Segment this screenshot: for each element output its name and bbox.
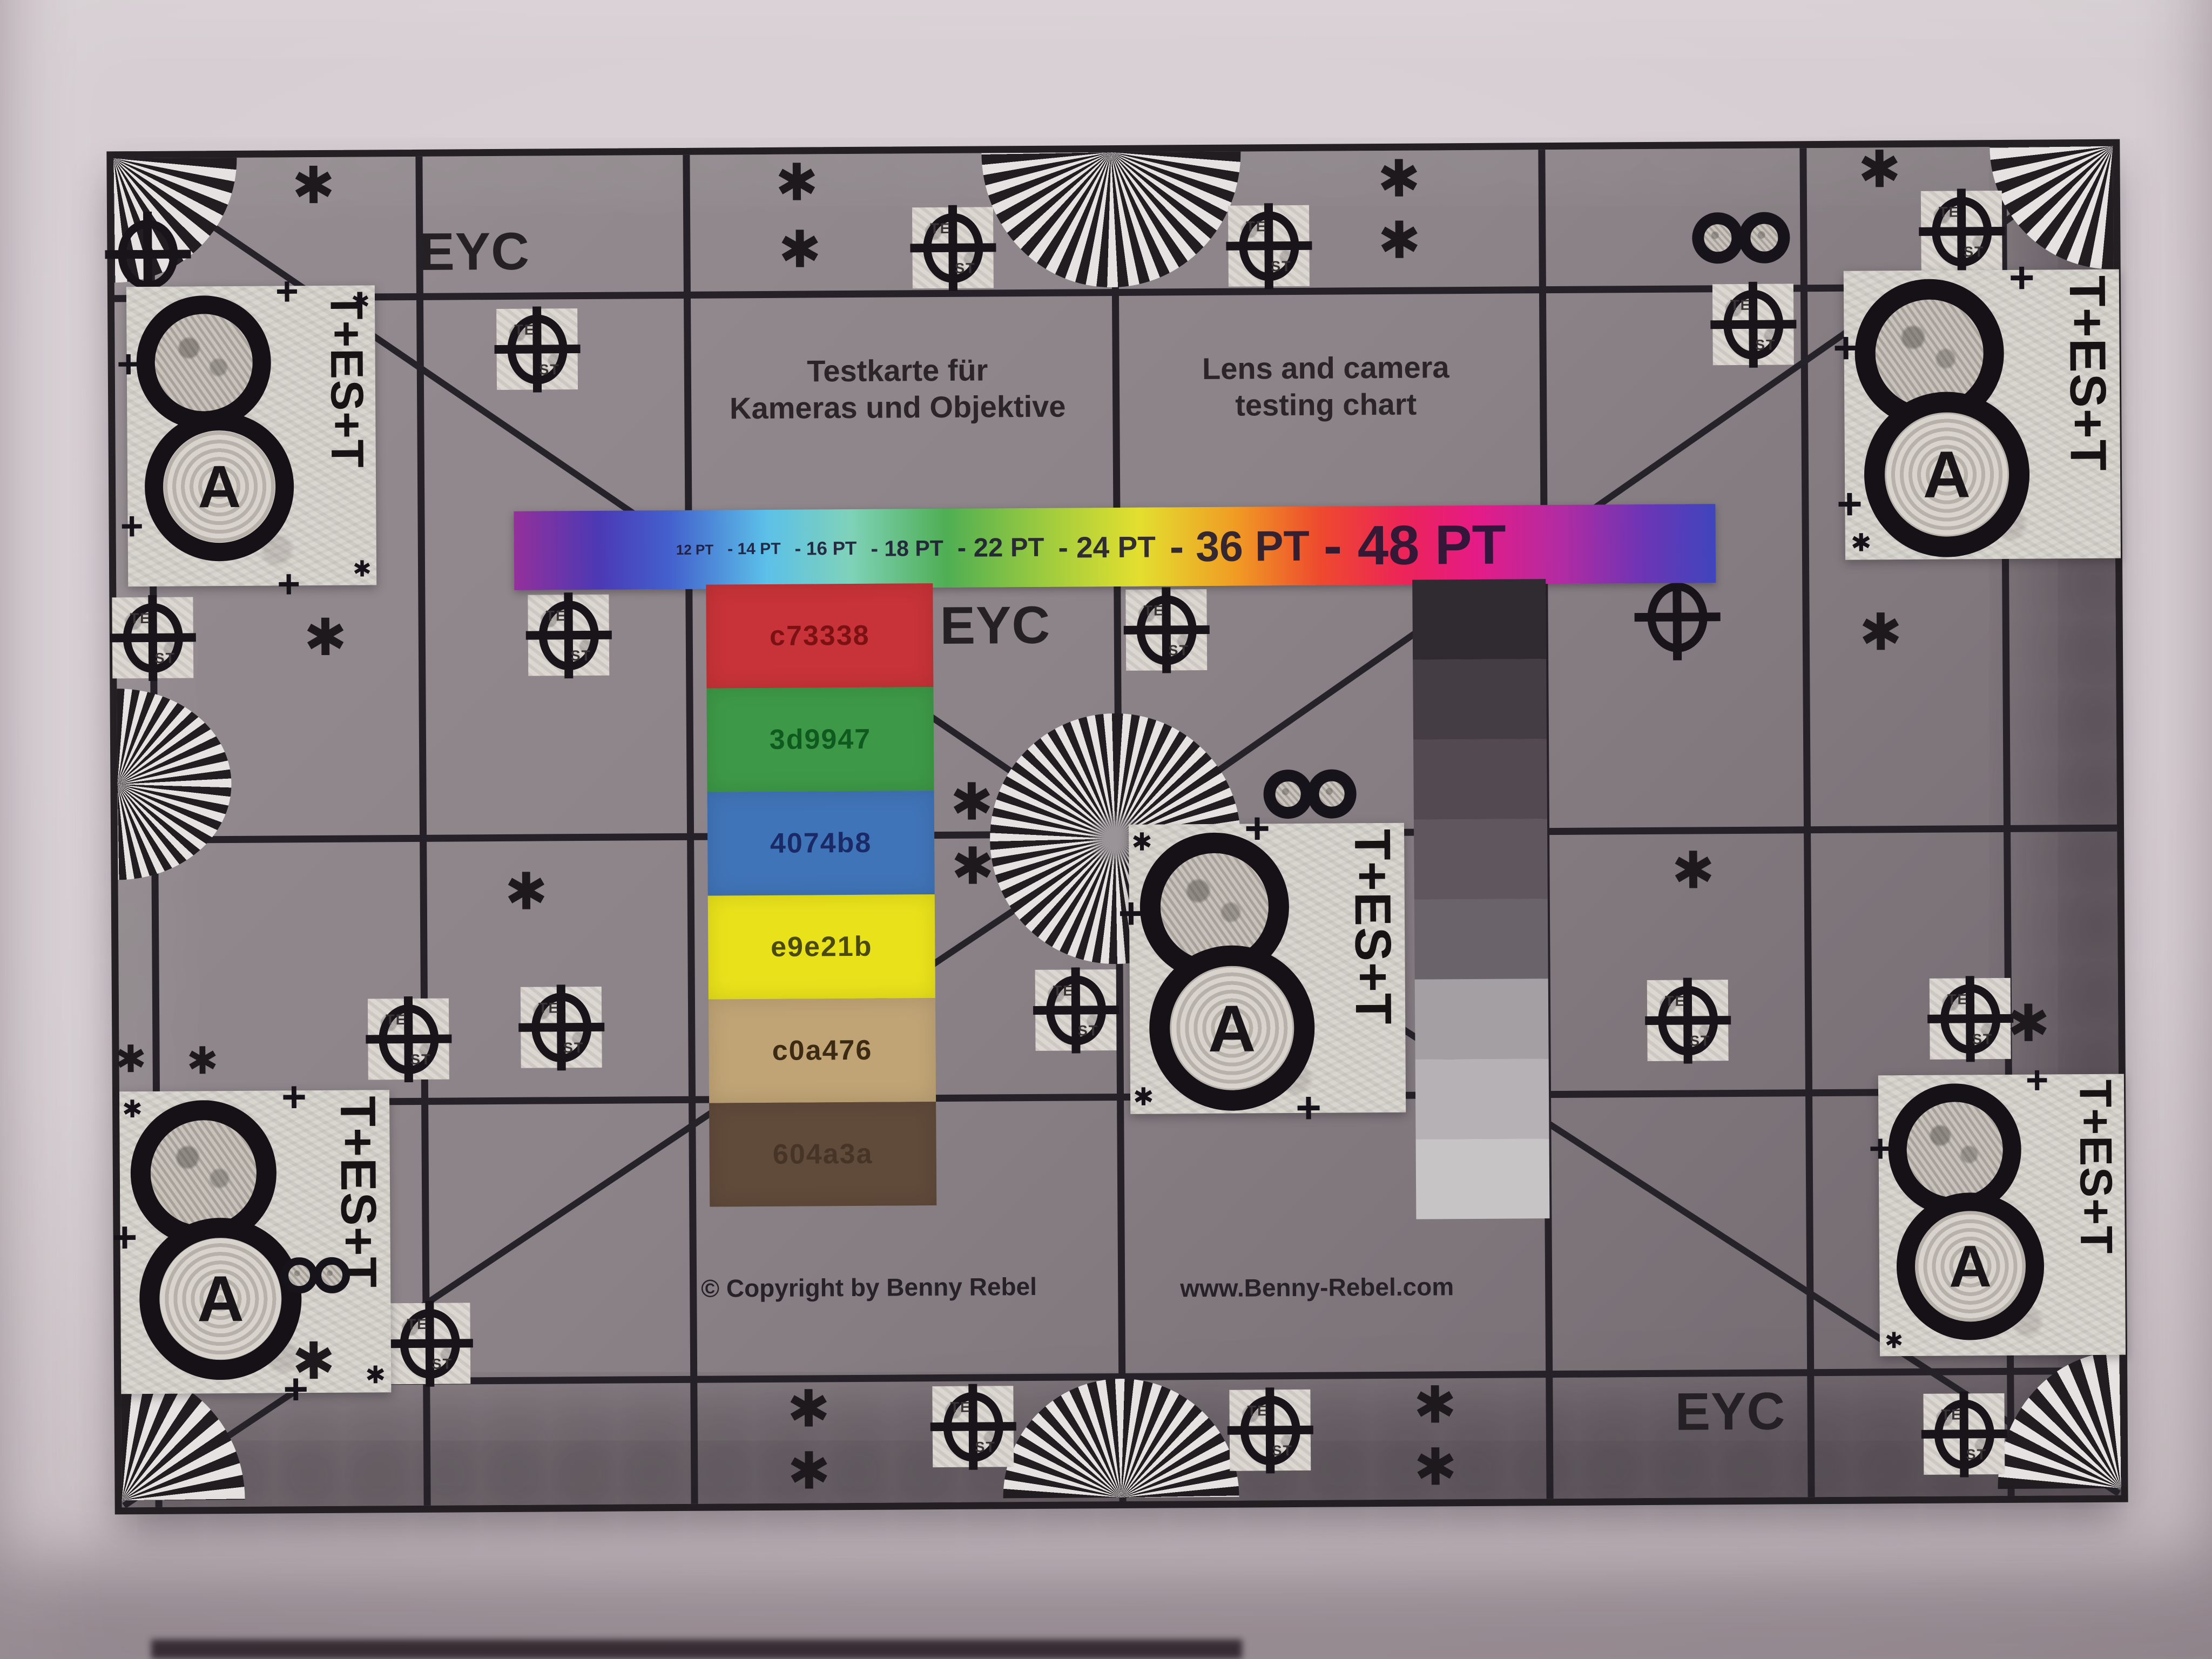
asterisk-mark: ✱ <box>787 1446 831 1497</box>
title-german: Testkarte für Kameras und Objektive <box>692 351 1103 427</box>
letter-a-spiral: A <box>1923 436 1971 513</box>
test-target-block-bottom-right: A T+ES+T + + ✱ <box>1878 1074 2126 1357</box>
pt-size-label: - 24 PT <box>1058 530 1156 565</box>
asterisk-mark: ✱ <box>292 160 335 212</box>
figure-eight-bottom-ring: A <box>139 1217 302 1380</box>
pt-size-label: - 36 PT <box>1170 521 1310 572</box>
letter-a-spiral: A <box>197 1262 245 1337</box>
letter-a-spiral: A <box>1208 990 1256 1067</box>
asterisk-mark: ✱ <box>775 157 818 208</box>
asterisk-mark: ✱ <box>950 777 993 828</box>
gray-step <box>1416 1138 1550 1219</box>
pt-size-label: - 48 PT <box>1323 513 1506 578</box>
crosshair-target: TEST <box>389 1303 470 1384</box>
color-patch-tan: c0a476 <box>709 998 936 1103</box>
asterisk-mark: ✱ <box>1377 154 1420 205</box>
small-eight-target <box>1692 198 1795 277</box>
vertical-test-label: T+ES+T <box>2058 275 2118 552</box>
asterisk-mark: ✱ <box>1859 607 1903 658</box>
crosshair-target: TEST <box>496 308 578 390</box>
eyc-label-center: EYC <box>940 595 1050 656</box>
crosshair-target: TEST <box>1125 589 1207 671</box>
asterisk-mark: ✱ <box>292 1336 335 1387</box>
crosshair-target: TEST <box>1228 205 1310 287</box>
pt-size-label: 12 PT <box>676 541 714 558</box>
gray-step <box>1414 819 1548 900</box>
color-patch-brown: 604a3a <box>709 1102 936 1207</box>
vertical-test-label: T+ES+T <box>329 1096 388 1386</box>
color-patch-blue: 4074b8 <box>707 791 935 896</box>
patch-hex-label: c73338 <box>770 619 870 652</box>
color-patch-column: c73338 3d9947 4074b8 e9e21b c0a476 604a3… <box>706 583 936 1207</box>
website-text: www.Benny-Rebel.com <box>1180 1272 1454 1303</box>
crosshair-target: TEST <box>1035 969 1117 1051</box>
letter-a-spiral: A <box>198 452 241 521</box>
test-target-block-top-left: A T+ES+T + + + + ✱ ✱ <box>126 285 376 586</box>
copyright-text: © Copyright by Benny Rebel <box>701 1272 1037 1303</box>
crosshair-target: TEST <box>912 207 994 288</box>
gray-step <box>1413 659 1547 740</box>
figure-eight-bottom-ring: A <box>1864 391 2030 557</box>
vertical-test-label: T+ES+T <box>2069 1080 2123 1350</box>
patch-hex-label: 604a3a <box>773 1138 873 1171</box>
crosshair-target: TEST <box>521 987 602 1068</box>
asterisk-mark: ✱ <box>114 1040 146 1078</box>
color-patch-red: c73338 <box>706 583 933 689</box>
asterisk-mark: ✱ <box>1414 1442 1457 1493</box>
small-eight-target <box>281 1252 354 1299</box>
asterisk-mark: ✱ <box>304 612 347 664</box>
color-patch-green: 3d9947 <box>706 687 934 792</box>
crosshair-icon <box>118 219 178 289</box>
table-shadow <box>151 1640 1242 1659</box>
crosshair-target: TEST <box>1921 191 2002 272</box>
pt-size-label: - 16 PT <box>794 538 857 560</box>
pt-size-label: - 18 PT <box>871 535 943 561</box>
test-target-block-top-right: A T+ES+T + + + ✱ <box>1844 269 2121 560</box>
title-english-line1: Lens and camera <box>1121 348 1531 388</box>
asterisk-mark: ✱ <box>1413 1380 1456 1431</box>
test-target-block-center: A T+ES+T + + + ✱ ✱ <box>1129 823 1406 1114</box>
asterisk-mark: ✱ <box>778 224 821 275</box>
asterisk-mark: ✱ <box>504 866 548 918</box>
figure-eight-bottom-ring: A <box>1149 945 1315 1111</box>
vertical-test-label: T+ES+T <box>1343 829 1403 1107</box>
pt-size-label: - 14 PT <box>727 540 781 559</box>
color-patch-yellow: e9e21b <box>708 894 935 1000</box>
asterisk-mark: ✱ <box>2007 998 2050 1049</box>
asterisk-mark: ✱ <box>1671 845 1715 896</box>
title-english: Lens and camera testing chart <box>1121 348 1532 424</box>
asterisk-mark: ✱ <box>951 841 994 892</box>
crosshair-target: TEST <box>1923 1393 2005 1475</box>
gray-step <box>1415 1058 1549 1139</box>
asterisk-mark: ✱ <box>787 1384 830 1435</box>
crosshair-target: TEST <box>528 595 609 676</box>
patch-hex-label: 4074b8 <box>770 827 872 860</box>
asterisk-mark: ✱ <box>1378 215 1421 267</box>
crosshair-target: TEST <box>368 999 449 1080</box>
crosshair-icon <box>1647 582 1708 652</box>
camera-test-chart: TEST TEST TEST TEST TEST TEST TEST TEST … <box>113 146 2121 1508</box>
title-german-line2: Kameras und Objektive <box>692 388 1103 427</box>
gray-step <box>1415 979 1549 1060</box>
letter-a-spiral: A <box>1949 1232 1992 1300</box>
patch-hex-label: 3d9947 <box>770 723 872 756</box>
asterisk-mark: ✱ <box>186 1042 218 1080</box>
crosshair-target <box>1636 576 1718 658</box>
patch-hex-label: c0a476 <box>772 1034 873 1067</box>
gray-step <box>1412 579 1546 660</box>
crosshair-target: TEST <box>932 1386 1014 1467</box>
patch-hex-label: e9e21b <box>771 930 873 963</box>
crosshair-target: TEST <box>1229 1390 1311 1471</box>
title-english-line2: testing chart <box>1121 385 1531 424</box>
test-target-block-bottom-left: A T+ES+T + + + ✱ ✱ <box>119 1090 391 1394</box>
gray-step <box>1413 739 1547 820</box>
figure-eight-top-ring <box>136 295 271 430</box>
grayscale-step-wedge <box>1412 579 1549 1219</box>
crosshair-target: TEST <box>1930 978 2011 1060</box>
gray-step <box>1414 899 1548 980</box>
crosshair-target: TEST <box>112 597 193 678</box>
asterisk-mark: ✱ <box>1858 144 1901 195</box>
vertical-test-label: T+ES+T <box>319 292 374 579</box>
figure-eight-bottom-ring: A <box>1896 1192 2045 1341</box>
eyc-label-bottom-right: EYC <box>1675 1380 1785 1442</box>
rainbow-font-size-bar: 12 PT - 14 PT - 16 PT - 18 PT - 22 PT - … <box>514 504 1716 590</box>
crosshair-target: TEST <box>1712 284 1794 365</box>
small-eight-target <box>1263 746 1361 841</box>
title-german-line1: Testkarte für <box>692 351 1103 390</box>
figure-eight-bottom-ring: A <box>144 412 294 562</box>
eyc-label-top-left: EYC <box>419 221 530 282</box>
crosshair-target: TEST <box>1647 980 1729 1061</box>
pt-size-label: - 22 PT <box>957 532 1044 563</box>
crosshair-target <box>107 213 188 295</box>
